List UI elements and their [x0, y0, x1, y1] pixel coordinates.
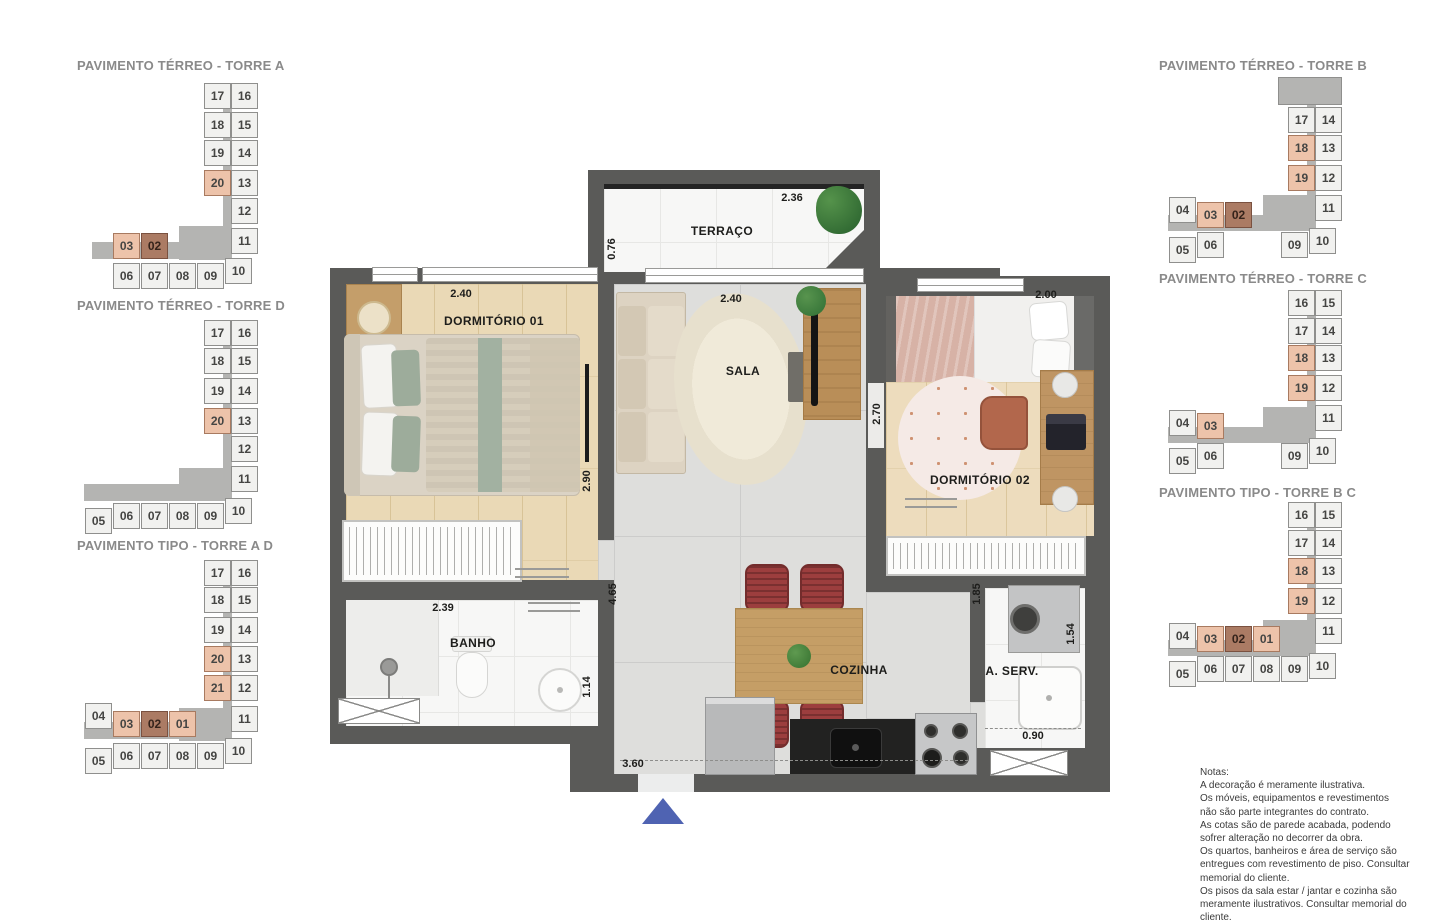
unit-cell-10: 10 — [1309, 228, 1336, 254]
note-line: não são parte integrantes do contrato. — [1200, 806, 1435, 819]
unit-cell-01: 01 — [1253, 626, 1280, 652]
shower-stem — [388, 676, 390, 700]
unit-cell-05: 05 — [1169, 237, 1196, 263]
keyplan-title: PAVIMENTO TIPO - TORRE B C — [1159, 485, 1440, 500]
unit-cell-13: 13 — [231, 170, 258, 196]
tv-living — [811, 302, 818, 406]
bed-headboard — [344, 334, 360, 496]
entry-door-opening — [638, 774, 694, 792]
unit-cell-19: 19 — [1288, 588, 1315, 614]
pillow-green — [391, 350, 421, 407]
unit-cell-03: 03 — [113, 233, 140, 259]
keyplan-title: PAVIMENTO TÉRREO - TORRE B — [1159, 58, 1440, 73]
desk-chair — [980, 396, 1028, 450]
unit-cell-16: 16 — [231, 83, 258, 109]
keyplan-terreo-torre-a: PAVIMENTO TÉRREO - TORRE A 1716181519142… — [77, 58, 287, 298]
wardrobe-bedroom2 — [886, 536, 1086, 576]
unit-cell-14: 14 — [1315, 318, 1342, 344]
unit-cell-12: 12 — [1315, 375, 1342, 401]
note-line: sofrer alteração no decorrer da obra. — [1200, 832, 1435, 845]
plant-icon — [796, 286, 826, 316]
unit-cell-15: 15 — [231, 348, 258, 374]
keyplan-tipo-torre-b-c: PAVIMENTO TIPO - TORRE B C 1615171418131… — [1159, 485, 1369, 725]
unit-cell-20: 20 — [204, 170, 231, 196]
wardrobe-bedroom1 — [342, 520, 522, 582]
note-line: memorial do cliente. — [1200, 872, 1435, 885]
unit-cell-02: 02 — [141, 233, 168, 259]
unit-cell-15: 15 — [1315, 290, 1342, 316]
unit-cell-14: 14 — [1315, 530, 1342, 556]
note-line: Notas: — [1200, 766, 1435, 779]
unit-cell-13: 13 — [1315, 135, 1342, 161]
keyplan-diagram: 16151714181319121104030201050607080910 — [1168, 500, 1353, 720]
dim-bathroom-width: 2.39 — [423, 602, 463, 614]
unit-cell-18: 18 — [1288, 345, 1315, 371]
keyplan-terreo-torre-d: PAVIMENTO TÉRREO - TORRE D 1716181519142… — [77, 298, 287, 538]
unit-cell-14: 14 — [231, 378, 258, 404]
washer-door — [1010, 604, 1040, 634]
unit-cell-07: 07 — [141, 263, 168, 289]
room-label-bedroom1: DORMITÓRIO 01 — [434, 314, 554, 328]
keyplan-terreo-torre-b: PAVIMENTO TÉRREO - TORRE B 1714181319121… — [1159, 58, 1369, 298]
entry-arrow-icon — [642, 798, 684, 824]
note-line: entregues com revestimento de piso. Cons… — [1200, 858, 1435, 871]
door-bedroom2 — [905, 498, 957, 508]
room-label-laundry: A. SERV. — [952, 664, 1072, 678]
unit-cell-16: 16 — [1288, 502, 1315, 528]
unit-cell-14: 14 — [1315, 107, 1342, 133]
unit-cell-11: 11 — [1315, 405, 1342, 431]
dim-bedroom2-depth: 2.70 — [871, 397, 883, 431]
unit-cell-10: 10 — [1309, 653, 1336, 679]
unit-cell-16: 16 — [231, 320, 258, 346]
unit-cell-04: 04 — [1169, 623, 1196, 649]
unit-cell-18: 18 — [1288, 135, 1315, 161]
bed2-footboard — [886, 296, 896, 382]
unit-cell-08: 08 — [169, 263, 196, 289]
unit-cell-14: 14 — [231, 617, 258, 643]
dim-bedroom1-depth: 2.90 — [581, 464, 593, 498]
kitchen-faucet — [852, 744, 859, 751]
keyplan-diagram: 1716181519142013211211040302010506070809… — [84, 558, 269, 778]
unit-cell-04: 04 — [1169, 410, 1196, 436]
unit-cell-08: 08 — [169, 743, 196, 769]
unit-cell-11: 11 — [231, 228, 258, 254]
dim-bedroom1-width: 2.40 — [441, 288, 481, 300]
unit-cell-17: 17 — [1288, 107, 1315, 133]
note-line: cliente. — [1200, 911, 1435, 924]
stove-burner — [922, 748, 942, 768]
unit-cell-05: 05 — [1169, 448, 1196, 474]
unit-cell-12: 12 — [231, 436, 258, 462]
note-line: Os móveis, equipamentos e revestimentos — [1200, 792, 1435, 805]
dim-hall-height: 4.65 — [607, 577, 619, 611]
unit-cell-13: 13 — [1315, 558, 1342, 584]
unit-cell-12: 12 — [231, 198, 258, 224]
unit-cell-19: 19 — [1288, 165, 1315, 191]
sink-drain — [557, 687, 563, 693]
keyplan-title: PAVIMENTO TÉRREO - TORRE A — [77, 58, 377, 73]
unit-cell-20: 20 — [204, 646, 231, 672]
room-label-terrace: TERRAÇO — [662, 224, 782, 238]
sofa-seat — [648, 412, 684, 462]
dim-terrace-depth: 0.76 — [606, 232, 618, 266]
refrigerator — [705, 697, 775, 775]
blanket-stripe — [478, 338, 502, 492]
unit-cell-19: 19 — [204, 140, 231, 166]
note-line: Os pisos da sala estar / jantar e cozinh… — [1200, 885, 1435, 898]
unit-cell-12: 12 — [231, 675, 258, 701]
dim-laundry-left: 1.85 — [971, 577, 983, 611]
unit-cell-04: 04 — [1169, 197, 1196, 223]
unit-cell-10: 10 — [1309, 438, 1336, 464]
unit-cell-17: 17 — [204, 83, 231, 109]
dim-living-width: 2.40 — [711, 293, 751, 305]
unit-cell-08: 08 — [1253, 656, 1280, 682]
tank-drain — [1046, 695, 1052, 701]
unit-cell-16: 16 — [1288, 290, 1315, 316]
toilet-bowl — [456, 652, 488, 698]
keyplan-diagram: 161517141813191211040305060910 — [1168, 285, 1353, 505]
unit-cell-06: 06 — [1197, 656, 1224, 682]
unit-cell-11: 11 — [231, 466, 258, 492]
unit-cell-03: 03 — [113, 711, 140, 737]
common-area — [1278, 77, 1342, 105]
dim-bedroom2-width: 2.00 — [1026, 289, 1066, 301]
unit-cell-17: 17 — [204, 320, 231, 346]
dining-chair — [745, 564, 789, 612]
unit-cell-16: 16 — [231, 560, 258, 586]
unit-cell-03: 03 — [1197, 202, 1224, 228]
unit-cell-18: 18 — [1288, 558, 1315, 584]
stool — [1052, 372, 1078, 398]
unit-cell-15: 15 — [231, 112, 258, 138]
unit-cell-10: 10 — [225, 258, 252, 284]
door-bedroom1 — [515, 568, 569, 578]
unit-cell-05: 05 — [85, 748, 112, 774]
unit-cell-18: 18 — [204, 348, 231, 374]
unit-cell-04: 04 — [85, 703, 112, 729]
sofa-cushion — [618, 412, 646, 462]
stove-burner — [924, 724, 938, 738]
unit-cell-10: 10 — [225, 498, 252, 524]
unit-cell-18: 18 — [204, 112, 231, 138]
unit-cell-05: 05 — [85, 508, 112, 534]
unit-cell-13: 13 — [231, 408, 258, 434]
corridor — [84, 484, 232, 501]
keyplan-diagram: 1714181319121104030205060910 — [1168, 75, 1353, 295]
window-bedroom2 — [917, 278, 1024, 292]
unit-cell-19: 19 — [204, 378, 231, 404]
unit-cell-07: 07 — [141, 503, 168, 529]
stool — [1052, 486, 1078, 512]
stove-burner — [953, 750, 969, 766]
keyplan-diagram: 1716181519142013121103020607080910 — [84, 78, 269, 298]
unit-cell-06: 06 — [113, 503, 140, 529]
unit-cell-09: 09 — [1281, 656, 1308, 682]
notes-block: Notas:A decoração é meramente ilustrativ… — [1200, 766, 1435, 924]
unit-cell-17: 17 — [204, 560, 231, 586]
blanket-fold — [530, 338, 580, 492]
unit-cell-17: 17 — [1288, 530, 1315, 556]
sofa-cushion — [618, 359, 646, 409]
unit-cell-12: 12 — [1315, 165, 1342, 191]
unit-cell-09: 09 — [197, 503, 224, 529]
unit-cell-13: 13 — [231, 646, 258, 672]
unit-cell-19: 19 — [1288, 375, 1315, 401]
note-line: A decoração é meramente ilustrativa. — [1200, 779, 1435, 792]
note-line: Os quartos, banheiros e área de serviço … — [1200, 845, 1435, 858]
dim-laundry-width: 0.90 — [1013, 730, 1053, 742]
unit-cell-01: 01 — [169, 711, 196, 737]
tv-bedroom1 — [585, 364, 589, 462]
keyplan-terreo-torre-c: PAVIMENTO TÉRREO - TORRE C 1615171418131… — [1159, 271, 1369, 511]
unit-cell-06: 06 — [113, 743, 140, 769]
unit-cell-11: 11 — [1315, 618, 1342, 644]
window-bedroom1 — [422, 267, 598, 282]
door-bathroom — [528, 602, 580, 612]
unit-cell-06: 06 — [113, 263, 140, 289]
window-terrace-door — [645, 268, 864, 283]
note-line: meramente ilustrativos. Consultar memori… — [1200, 898, 1435, 911]
unit-cell-11: 11 — [231, 706, 258, 732]
shaft-box — [990, 750, 1068, 776]
unit-cell-08: 08 — [169, 503, 196, 529]
unit-cell-21: 21 — [204, 675, 231, 701]
dashed-line — [985, 728, 1081, 729]
unit-cell-09: 09 — [197, 743, 224, 769]
pillow-white — [1028, 300, 1069, 341]
dim-laundry-right: 1.54 — [1065, 617, 1077, 651]
unit-cell-09: 09 — [1281, 232, 1308, 258]
unit-cell-03: 03 — [1197, 413, 1224, 439]
stove — [915, 713, 977, 775]
unit-cell-15: 15 — [231, 587, 258, 613]
window-bedroom1-small — [372, 267, 418, 282]
laptop — [1046, 414, 1086, 450]
stove-burner — [952, 723, 968, 739]
room-label-bedroom2: DORMITÓRIO 02 — [920, 473, 1040, 487]
keyplan-tipo-torre-a-d: PAVIMENTO TIPO - TORRE A D 1716181519142… — [77, 538, 287, 778]
shaft-box — [338, 698, 420, 724]
unit-cell-18: 18 — [204, 587, 231, 613]
unit-cell-06: 06 — [1197, 232, 1224, 258]
unit-cell-02: 02 — [1225, 202, 1252, 228]
shower-head — [380, 658, 398, 676]
unit-cell-09: 09 — [197, 263, 224, 289]
unit-cell-19: 19 — [204, 617, 231, 643]
unit-cell-14: 14 — [231, 140, 258, 166]
unit-cell-03: 03 — [1197, 626, 1224, 652]
dining-chair — [800, 564, 844, 612]
unit-cell-07: 07 — [1225, 656, 1252, 682]
unit-cell-12: 12 — [1315, 588, 1342, 614]
unit-cell-02: 02 — [141, 711, 168, 737]
keyplan-diagram: 17161815191420131211050607080910 — [84, 318, 269, 538]
dim-bathroom-depth: 1.14 — [581, 670, 593, 704]
dashed-line — [620, 760, 968, 761]
sofa-cushion — [618, 306, 646, 356]
bed-single-blanket — [896, 296, 974, 382]
unit-cell-13: 13 — [1315, 345, 1342, 371]
unit-cell-07: 07 — [141, 743, 168, 769]
hall-opening — [598, 540, 614, 580]
unit-cell-05: 05 — [1169, 661, 1196, 687]
unit-cell-11: 11 — [1315, 195, 1342, 221]
unit-cell-20: 20 — [204, 408, 231, 434]
floor-plan: TERRAÇO DORMITÓRIO 01 SALA DORMITÓRIO 02… — [330, 168, 1110, 828]
room-label-living: SALA — [683, 364, 803, 378]
keyplan-title: PAVIMENTO TÉRREO - TORRE C — [1159, 271, 1440, 286]
unit-cell-15: 15 — [1315, 502, 1342, 528]
dim-entry-width: 3.60 — [613, 758, 653, 770]
unit-cell-17: 17 — [1288, 318, 1315, 344]
room-label-bathroom: BANHO — [413, 636, 533, 650]
unit-cell-10: 10 — [225, 738, 252, 764]
unit-cell-09: 09 — [1281, 443, 1308, 469]
pillow-green — [391, 416, 421, 473]
plant-icon — [816, 186, 862, 234]
room-label-kitchen: COZINHA — [799, 663, 919, 677]
unit-cell-02: 02 — [1225, 626, 1252, 652]
note-line: As cotas são de parede acabada, podendo — [1200, 819, 1435, 832]
unit-cell-06: 06 — [1197, 443, 1224, 469]
lamp — [357, 301, 391, 335]
dim-terrace-width: 2.36 — [772, 192, 812, 204]
